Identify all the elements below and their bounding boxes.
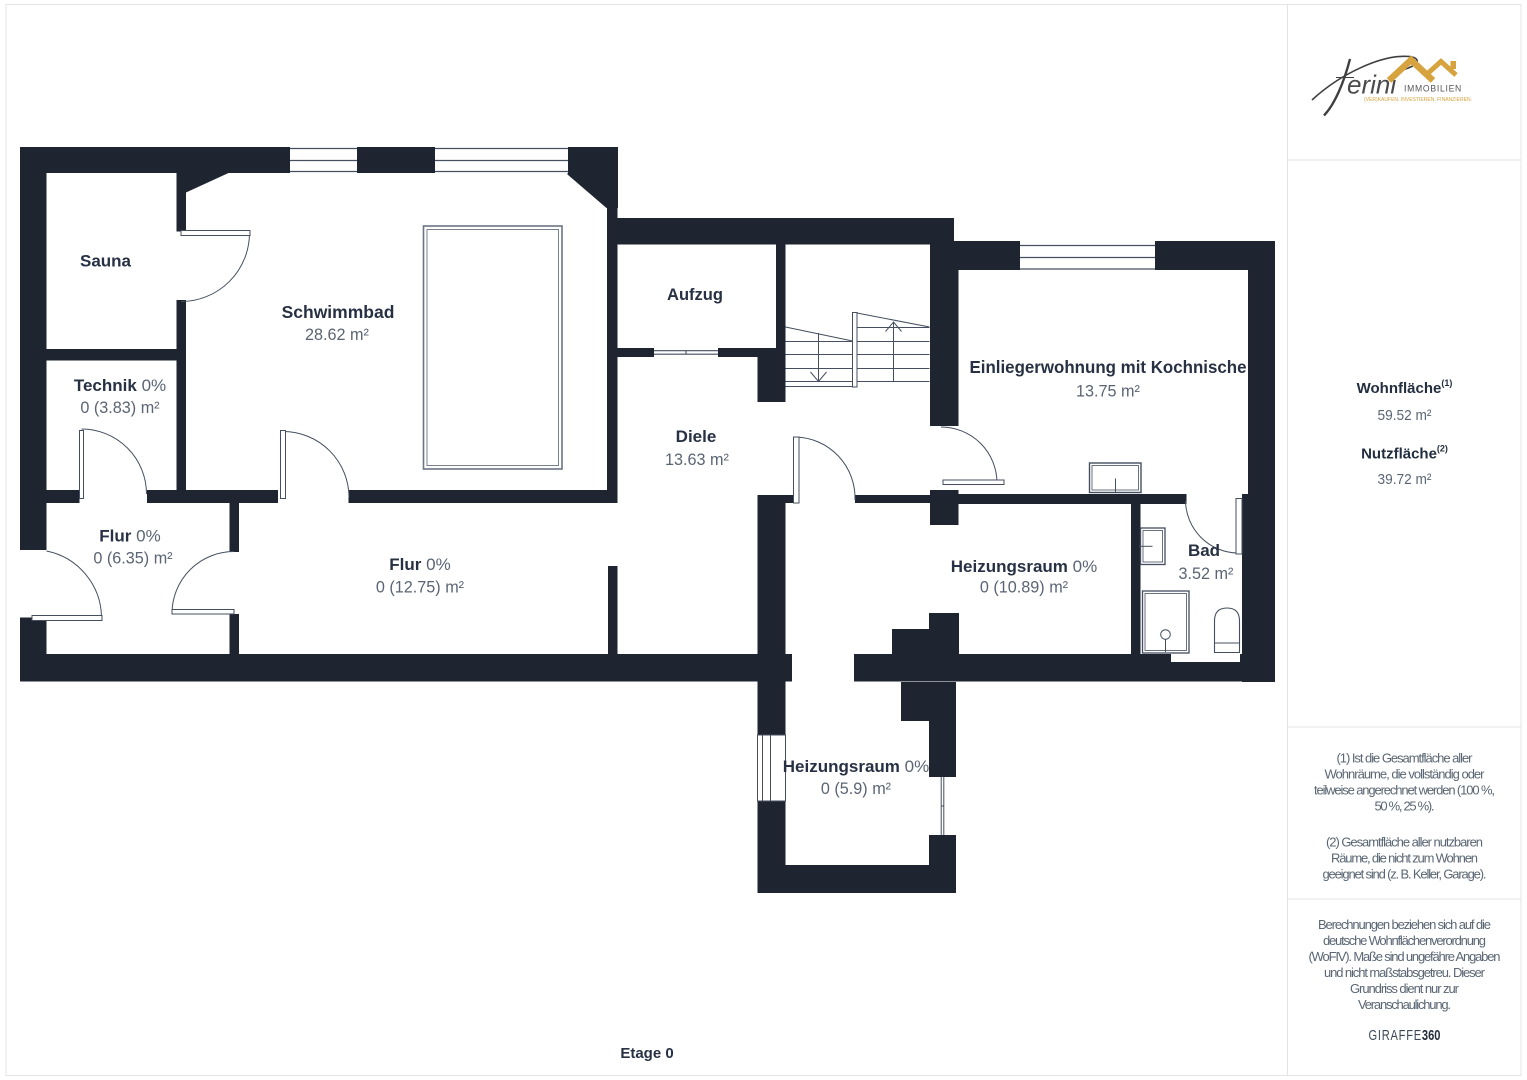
svg-text:IMMOBILIEN: IMMOBILIEN [1404, 84, 1462, 95]
svg-text:und nicht maßstabsgetreu. Dies: und nicht maßstabsgetreu. Dieser [1324, 965, 1486, 980]
svg-text:50 %, 25 %).: 50 %, 25 %). [1375, 799, 1435, 814]
svg-text:Wohnräume, die vollständig ode: Wohnräume, die vollständig oder [1325, 767, 1486, 782]
svg-text:Flur 0%: Flur 0% [389, 555, 450, 574]
svg-text:13.63 m²: 13.63 m² [665, 451, 729, 469]
svg-text:(2) Gesamtfläche aller nutzbar: (2) Gesamtfläche aller nutzbaren [1326, 835, 1483, 850]
svg-text:deutsche Wohnflächenverordnung: deutsche Wohnflächenverordnung [1323, 933, 1486, 948]
svg-text:3.52 m²: 3.52 m² [1179, 565, 1234, 583]
svg-text:Schwimmbad: Schwimmbad [282, 302, 395, 322]
svg-text:Aufzug: Aufzug [667, 286, 723, 304]
svg-text:Etage 0: Etage 0 [620, 1045, 673, 1062]
svg-text:GIRAFFE360: GIRAFFE360 [1369, 1027, 1441, 1044]
svg-text:0 (5.9) m²: 0 (5.9) m² [821, 780, 892, 798]
svg-text:Heizungsraum 0%: Heizungsraum 0% [783, 757, 929, 776]
svg-text:0 (6.35) m²: 0 (6.35) m² [93, 550, 173, 568]
svg-text:erini: erini [1347, 70, 1397, 100]
svg-text:Berechnungen beziehen sich auf: Berechnungen beziehen sich auf die [1318, 917, 1491, 932]
svg-text:Bad: Bad [1188, 541, 1220, 560]
svg-text:0 (10.89) m²: 0 (10.89) m² [980, 579, 1069, 597]
svg-text:0 (3.83) m²: 0 (3.83) m² [80, 399, 160, 417]
svg-text:geeignet sind (z. B. Keller, G: geeignet sind (z. B. Keller, Garage). [1323, 867, 1487, 882]
svg-text:28.62 m²: 28.62 m² [305, 326, 369, 344]
svg-text:Wohnfläche(1): Wohnfläche(1) [1357, 378, 1453, 397]
svg-text:39.72 m²: 39.72 m² [1378, 471, 1432, 488]
svg-text:Grundriss dient nur zur: Grundriss dient nur zur [1350, 981, 1460, 996]
svg-text:Veranschaulichung.: Veranschaulichung. [1358, 997, 1451, 1012]
svg-text:Räume, die nicht zum Wohnen: Räume, die nicht zum Wohnen [1331, 851, 1478, 866]
svg-text:(1) Ist die Gesamtfläche aller: (1) Ist die Gesamtfläche aller [1337, 751, 1474, 766]
svg-text:Technik 0%: Technik 0% [74, 376, 166, 395]
svg-text:Sauna: Sauna [80, 252, 132, 271]
svg-text:Nutzfläche(2): Nutzfläche(2) [1361, 444, 1448, 463]
svg-text:(VER)KAUFEN. INVESTIEREN. FINA: (VER)KAUFEN. INVESTIEREN. FINANZIEREN. [1364, 97, 1472, 103]
svg-text:13.75 m²: 13.75 m² [1076, 383, 1140, 401]
svg-text:0 (12.75) m²: 0 (12.75) m² [376, 579, 465, 597]
svg-text:Diele: Diele [676, 427, 717, 446]
svg-text:Einliegerwohnung mit Kochnisch: Einliegerwohnung mit Kochnische [970, 357, 1247, 377]
svg-text:Heizungsraum 0%: Heizungsraum 0% [951, 557, 1097, 576]
svg-text:teilweise angerechnet werden (: teilweise angerechnet werden (100 %, [1314, 783, 1495, 798]
svg-text:(WoFIV). Maße sind ungefähre A: (WoFIV). Maße sind ungefähre Angaben [1309, 949, 1501, 964]
svg-text:Flur 0%: Flur 0% [99, 527, 160, 546]
svg-text:59.52 m²: 59.52 m² [1378, 407, 1432, 424]
